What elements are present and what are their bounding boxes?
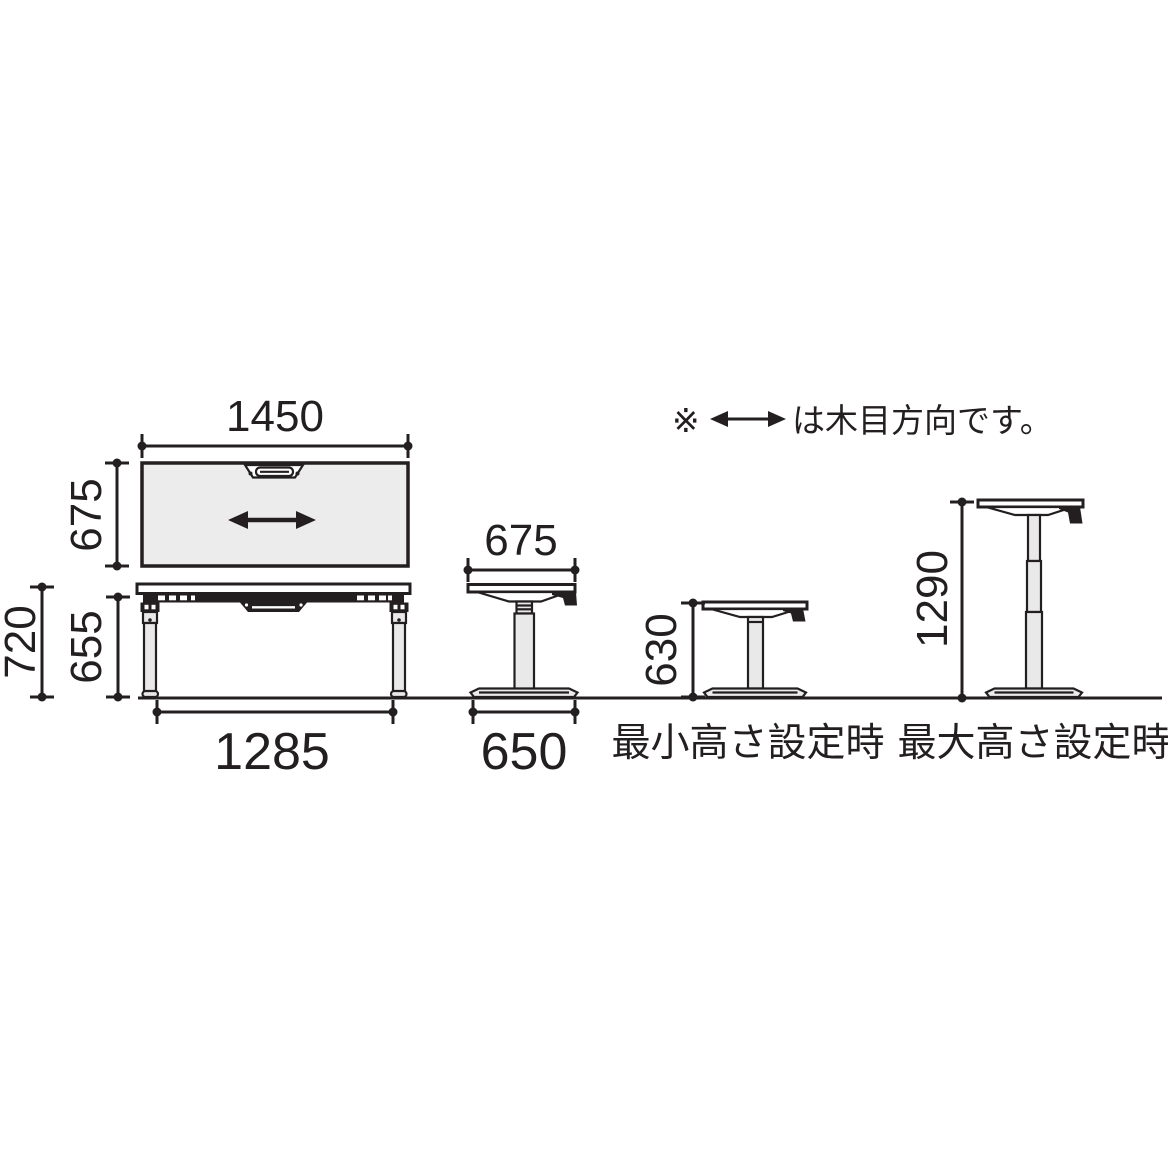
- dim-overall-height-720: 720: [0, 583, 54, 702]
- grain-note-text: は木目方向です。: [792, 402, 1053, 439]
- leg-right: [390, 603, 409, 698]
- column-min: [748, 617, 763, 689]
- dim-label-clearance: 655: [62, 610, 111, 683]
- base-foot: [471, 689, 578, 698]
- dim-label-side-depth: 675: [484, 516, 557, 565]
- dim-base-depth-650: 650: [469, 700, 580, 781]
- dim-label-top-depth: 675: [62, 478, 111, 551]
- min-height-view: 630 最小高さ設定時: [611, 599, 884, 766]
- front-view: 720 655 1285: [0, 583, 410, 782]
- grain-note-marker: ※: [672, 402, 700, 439]
- top-view: 1450 675: [62, 392, 413, 571]
- base-foot-min: [704, 689, 806, 698]
- leg-left: [141, 603, 160, 698]
- controller-hook-min: [783, 608, 806, 622]
- dim-label-leg-span: 1285: [214, 723, 330, 781]
- dim-min-height-630: 630: [637, 599, 705, 702]
- tabletop-side: [468, 585, 575, 593]
- dim-label-min-height: 630: [637, 613, 686, 686]
- min-height-caption: 最小高さ設定時: [611, 722, 884, 765]
- controller-hook-max: [1059, 506, 1083, 524]
- dim-label-overall-height: 720: [0, 605, 45, 678]
- diagram-canvas: ※ は木目方向です。 1450: [0, 0, 1168, 1168]
- dim-leg-span-1285: 1285: [153, 700, 398, 781]
- note-arrow-icon: [710, 411, 786, 427]
- grain-note: ※ は木目方向です。: [672, 402, 1053, 439]
- dim-clearance-655: 655: [62, 593, 130, 702]
- cable-tray-cutout: [245, 465, 303, 478]
- controller-hook: [552, 592, 577, 606]
- frame-beam: [143, 594, 404, 603]
- dim-depth-675: 675: [62, 459, 129, 571]
- dim-side-depth-675: 675: [464, 516, 580, 582]
- cable-tray-front: [240, 603, 307, 613]
- dim-label-base-depth: 650: [481, 723, 568, 781]
- max-height-view: 1290 最大高さ設定時: [897, 498, 1168, 766]
- base-foot-max: [986, 689, 1082, 698]
- desk-dimension-diagram: ※ は木目方向です。 1450: [0, 0, 1168, 1168]
- tabletop-front: [137, 584, 410, 594]
- dim-width-1450: 1450: [138, 392, 413, 458]
- column: [515, 602, 535, 690]
- side-view: 675 650: [464, 516, 580, 781]
- column-max: [1026, 515, 1042, 689]
- dim-label-max-height: 1290: [908, 550, 957, 648]
- dim-label-top-width: 1450: [226, 392, 324, 441]
- dim-max-height-1290: 1290: [908, 498, 974, 703]
- max-height-caption: 最大高さ設定時: [897, 722, 1168, 765]
